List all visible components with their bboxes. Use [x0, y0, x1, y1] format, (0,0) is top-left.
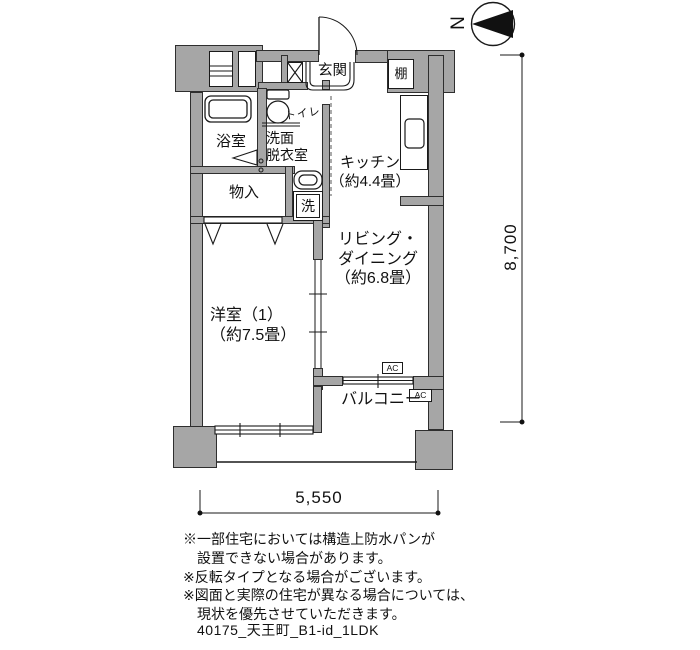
plan-id-text: 40175_天王町_B1-id_1LDK	[197, 622, 379, 639]
wall-living-balcony-right	[413, 376, 444, 390]
window-balcony	[343, 374, 413, 388]
north-arrow-icon	[472, 3, 515, 46]
meter-box	[287, 62, 303, 83]
wall-right	[428, 55, 444, 430]
wall-corner-bottom-left	[173, 426, 217, 468]
disclaimer-notes: ※一部住宅においては構造上防水パンが 設置できない場合があります。 ※反転タイプ…	[183, 530, 474, 624]
bathtub-icon	[205, 96, 251, 122]
room-label-western: 洋室（1） （約7.5畳）	[210, 306, 296, 346]
room-label-living: リビング・ ダイニング （約6.8畳）	[333, 230, 423, 289]
wall-bath-bottom	[190, 166, 295, 174]
room-label-storage: 物入	[203, 184, 285, 202]
duct-box	[238, 51, 256, 87]
room-label-bath: 浴室	[203, 133, 259, 151]
wall-kitchen-stub	[400, 196, 444, 206]
wall-corner-bottom-right	[415, 430, 453, 470]
dimension-height-label: 8,700	[501, 212, 521, 282]
room-label-genkan: 玄関	[318, 63, 347, 80]
room-label-toilet: トイレ	[284, 106, 321, 124]
pipe-shaft-box	[209, 51, 233, 87]
ac-label-balcony: AC	[409, 389, 432, 402]
sliding-door-icon	[309, 260, 327, 368]
wall-washroom-right-top	[322, 80, 330, 90]
room-label-shelf: 棚	[388, 59, 414, 89]
entrance-door-icon	[319, 17, 357, 55]
dimension-width-label: 5,550	[259, 488, 379, 508]
floor-plan-canvas: N 玄関 棚 トイレ 洗面 脱衣室 浴室 物入 洗 キッチン （約4.4畳） リ…	[0, 0, 700, 650]
window-bottom	[215, 423, 313, 437]
room-label-washer: 洗	[293, 191, 323, 221]
ac-label-living: AC	[382, 362, 403, 374]
wall-left	[190, 92, 203, 428]
wall-living-balcony-left	[313, 376, 343, 386]
room-label-washroom: 洗面 脱衣室	[266, 130, 308, 164]
room-label-kitchen: キッチン （約4.4畳）	[327, 153, 413, 191]
north-label: N	[448, 12, 470, 34]
wall-top-right-of-door	[355, 50, 389, 63]
washbasin-icon	[294, 171, 322, 189]
wall-balcony-left	[313, 386, 322, 433]
wall-partition-top	[313, 216, 323, 260]
toilet-door-line	[262, 123, 300, 126]
